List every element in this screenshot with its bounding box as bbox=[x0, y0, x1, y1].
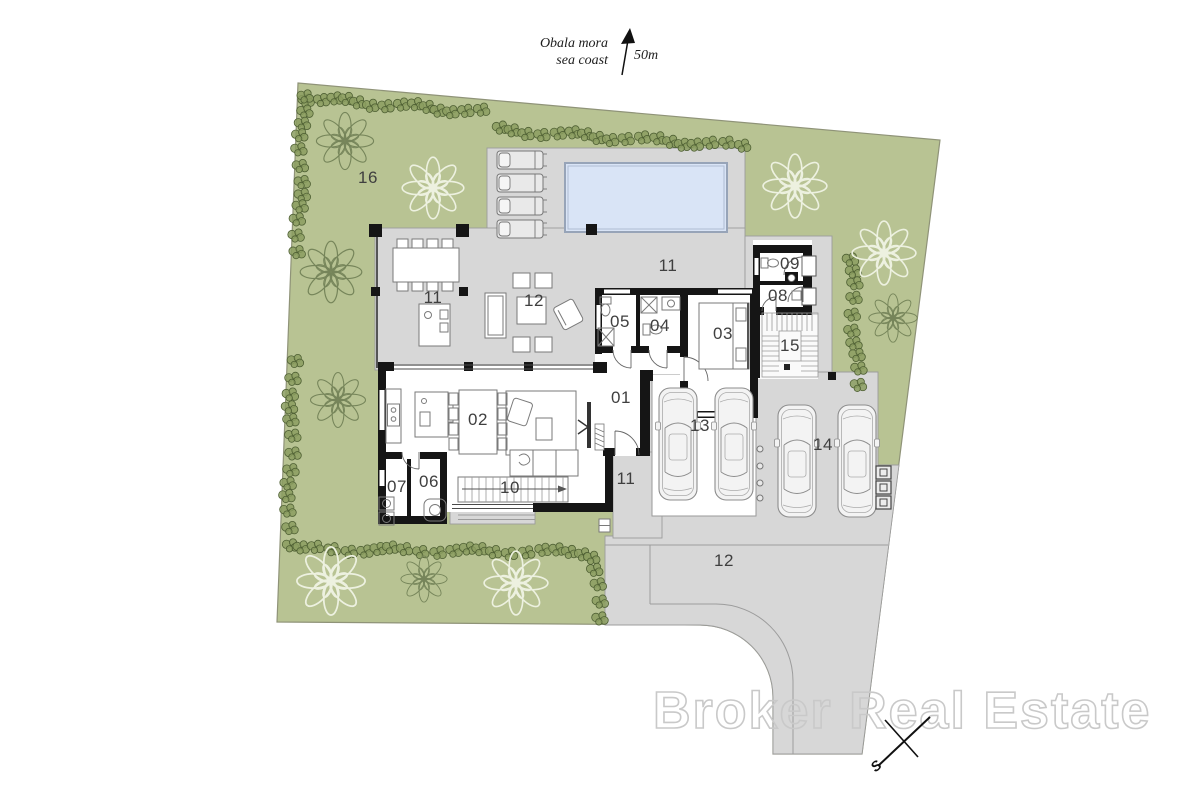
hedge-shrub bbox=[594, 585, 600, 591]
hedge-shrub bbox=[382, 106, 388, 112]
watermark: Broker Real Estate bbox=[653, 682, 1151, 740]
area-label-14: 14 bbox=[813, 435, 833, 454]
hedge-shrub bbox=[848, 315, 854, 321]
annotation-line1: Obala mora bbox=[540, 36, 608, 51]
hedge-shrub bbox=[565, 552, 571, 558]
hedge-shrub bbox=[848, 331, 854, 337]
hedge-shrub bbox=[654, 139, 660, 145]
waste-bin bbox=[876, 496, 891, 509]
car bbox=[712, 388, 757, 500]
hedge-shrub bbox=[293, 252, 299, 258]
hedge-shrub bbox=[522, 553, 528, 559]
hedge-shrub bbox=[691, 145, 697, 151]
hedge-shrub bbox=[400, 549, 406, 555]
hedge-shrub bbox=[289, 379, 295, 385]
hedge-shrub bbox=[292, 236, 298, 242]
area-label-13: 13 bbox=[690, 416, 710, 435]
hedge-shrub bbox=[289, 436, 295, 442]
hedge-shrub bbox=[606, 140, 612, 146]
bollard bbox=[757, 446, 763, 452]
hedge-shrub bbox=[489, 552, 495, 558]
hedge-shrub bbox=[706, 143, 712, 149]
hedge-shrub bbox=[849, 272, 855, 278]
car bbox=[656, 388, 701, 500]
area-label-05: 05 bbox=[610, 312, 630, 331]
hedge-shrub bbox=[317, 100, 323, 106]
hedge-shrub bbox=[666, 142, 672, 148]
area-label-11: 11 bbox=[659, 256, 678, 275]
hedge-shrub bbox=[286, 528, 292, 534]
hedge-shrub bbox=[289, 454, 295, 460]
area-label-03: 03 bbox=[713, 324, 733, 343]
hedge-shrub bbox=[291, 361, 297, 367]
area-label-16: 16 bbox=[358, 168, 378, 187]
hedge-shrub bbox=[554, 134, 560, 140]
hedge-shrub bbox=[854, 385, 860, 391]
hedge-shrub bbox=[553, 550, 559, 556]
hedge-shrub bbox=[539, 550, 545, 556]
area-label-09: 09 bbox=[780, 254, 800, 273]
area-label-04: 04 bbox=[650, 316, 670, 335]
area-label-10: 10 bbox=[500, 478, 520, 497]
hedge-shrub bbox=[328, 549, 334, 555]
hedge-shrub bbox=[463, 549, 469, 555]
waste-bins bbox=[876, 466, 891, 509]
hedge-shrub bbox=[311, 547, 317, 553]
hedge-shrub bbox=[622, 139, 628, 145]
car bbox=[835, 405, 880, 517]
site-plan-svg: 16111211050403090815010206071013141112 O… bbox=[0, 0, 1200, 800]
hedge-shrub bbox=[434, 111, 440, 117]
hedge-shrub bbox=[386, 548, 392, 554]
hedge-shrub bbox=[353, 103, 359, 109]
hedge-shrub bbox=[366, 106, 372, 112]
hedge-shrub bbox=[850, 298, 856, 304]
hedge-shrub bbox=[723, 143, 729, 149]
hedge-shrub bbox=[295, 135, 301, 141]
hedge-shrub bbox=[293, 220, 299, 226]
annotation-line2: sea coast bbox=[556, 53, 609, 68]
hedge-shrub bbox=[590, 570, 596, 576]
hedge-shrub bbox=[374, 549, 380, 555]
hedge-shrub bbox=[286, 546, 292, 552]
area-label-08: 08 bbox=[768, 286, 788, 305]
hedge-shrub bbox=[522, 134, 528, 140]
north-arrow-line bbox=[622, 40, 628, 75]
hedge-shrub bbox=[638, 138, 644, 144]
bollard bbox=[757, 495, 763, 501]
hedge-shrub bbox=[462, 111, 468, 117]
hedge-shrub bbox=[296, 207, 302, 213]
pool-group bbox=[565, 163, 727, 232]
hedge-shrub bbox=[596, 619, 602, 625]
hedge-shrub bbox=[851, 284, 857, 290]
sun-lounger bbox=[497, 151, 547, 169]
compass-south-label: S bbox=[867, 756, 885, 775]
exterior-steps bbox=[450, 510, 535, 524]
hedge-shrub bbox=[286, 395, 292, 401]
hedge-shrub bbox=[496, 128, 502, 134]
hedge-shrub bbox=[411, 104, 417, 110]
hedge-shrub bbox=[342, 99, 348, 105]
hedge-shrub bbox=[569, 133, 575, 139]
area-label-12: 12 bbox=[524, 291, 544, 310]
bollard bbox=[757, 463, 763, 469]
area-label-02: 02 bbox=[468, 410, 488, 429]
hedge-shrub bbox=[593, 138, 599, 144]
sun-lounger bbox=[497, 197, 547, 215]
hedge-shrub bbox=[508, 131, 514, 137]
area-label-07: 07 bbox=[387, 477, 407, 496]
hedge-shrub bbox=[301, 97, 307, 103]
hedge-shrub bbox=[738, 146, 744, 152]
hedge-shrub bbox=[538, 135, 544, 141]
hedge-shrub bbox=[283, 496, 289, 502]
north-arrow-head bbox=[621, 28, 635, 44]
hedge-shrub bbox=[596, 602, 602, 608]
hedge-shrub bbox=[450, 551, 456, 557]
hedge-shrub bbox=[361, 552, 367, 558]
hedge-shrub bbox=[855, 369, 861, 375]
hedge-shrub bbox=[587, 558, 593, 564]
hedge-shrub bbox=[678, 145, 684, 151]
area-label-01: 01 bbox=[611, 388, 631, 407]
hedge-shrub bbox=[285, 408, 291, 414]
hedge-shrub bbox=[331, 99, 337, 105]
hedge-shrub bbox=[287, 420, 293, 426]
hedge-shrub bbox=[477, 110, 483, 116]
bollard bbox=[757, 480, 763, 486]
hedge-shrub bbox=[416, 552, 422, 558]
hedge-shrub bbox=[850, 344, 856, 350]
hedge-shrub bbox=[423, 107, 429, 113]
hedge-shrub bbox=[295, 150, 301, 156]
hedge-shrub bbox=[434, 553, 440, 559]
sea-coast-annotation: Obala mora sea coast 50m bbox=[540, 28, 658, 75]
area-label-12: 12 bbox=[714, 551, 734, 570]
hedge-shrub bbox=[287, 470, 293, 476]
area-label-15: 15 bbox=[780, 336, 800, 355]
annotation-distance: 50m bbox=[634, 48, 658, 63]
hedge-shrub bbox=[298, 182, 304, 188]
waste-bin bbox=[876, 481, 891, 494]
area-label-11: 11 bbox=[424, 288, 443, 307]
swimming-pool bbox=[565, 163, 727, 232]
sun-lounger bbox=[497, 220, 547, 238]
waste-bin bbox=[876, 466, 891, 479]
hedge-shrub bbox=[853, 355, 859, 361]
hedge-shrub bbox=[447, 112, 453, 118]
car bbox=[775, 405, 820, 517]
site-plan-page: 16111211050403090815010206071013141112 O… bbox=[0, 0, 1200, 800]
hedge-shrub bbox=[476, 549, 482, 555]
hedge-shrub bbox=[581, 135, 587, 141]
sun-lounger bbox=[497, 174, 547, 192]
hedge-shrub bbox=[284, 511, 290, 517]
hedge-shrub bbox=[397, 105, 403, 111]
area-label-11: 11 bbox=[617, 469, 636, 488]
hedge-shrub bbox=[296, 166, 302, 172]
hedge-shrub bbox=[297, 548, 303, 554]
hedge-shrub bbox=[846, 260, 852, 266]
area-label-06: 06 bbox=[419, 472, 439, 491]
